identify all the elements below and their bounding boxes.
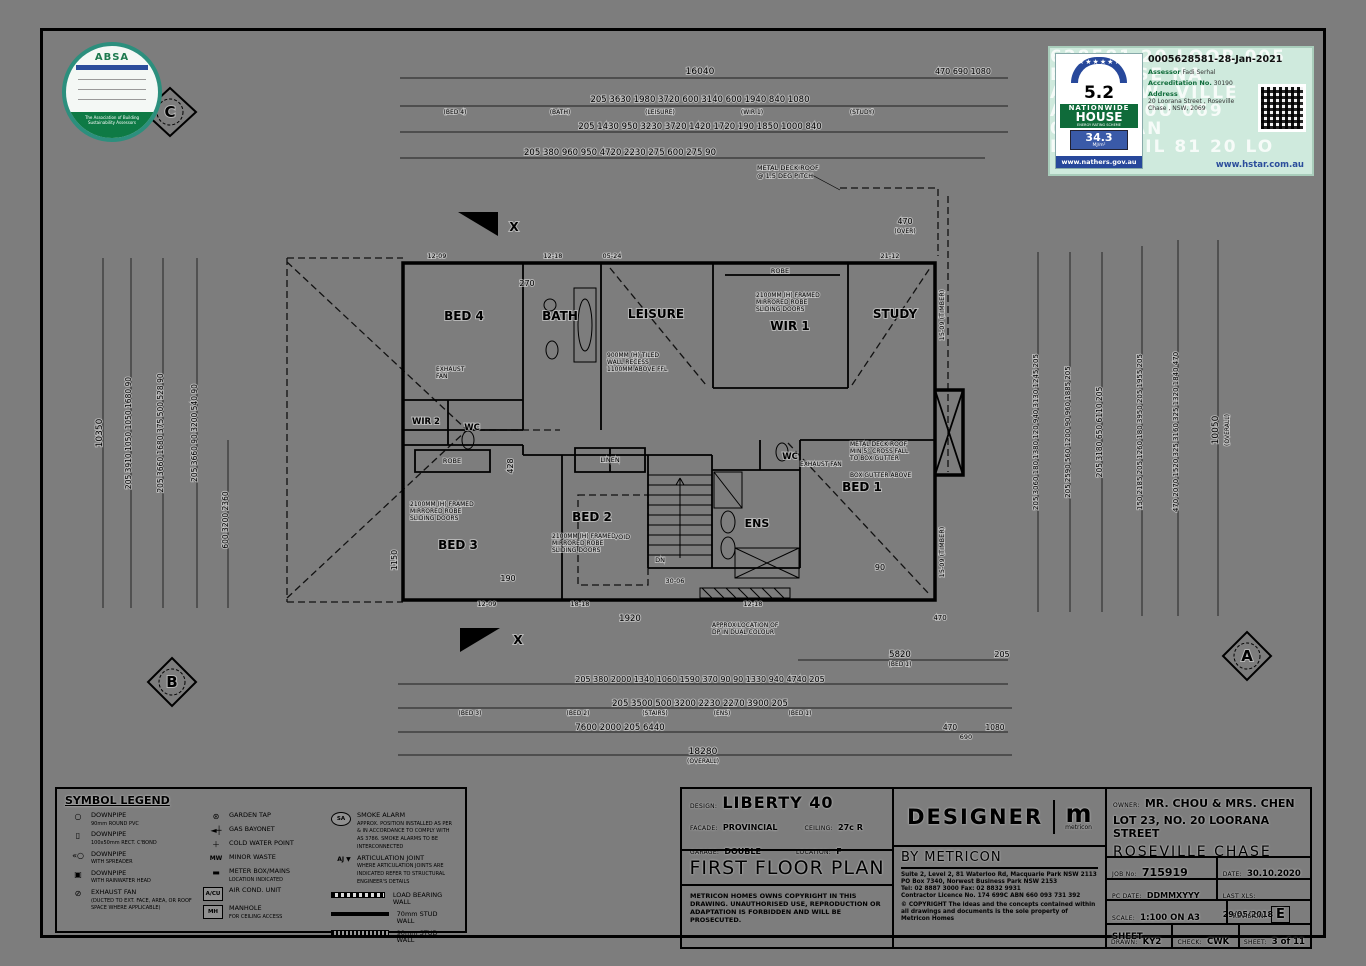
legend-label: AIR COND. UNIT <box>229 887 281 895</box>
dim-left: 205 3910 1050 1050 1680 90 <box>124 377 133 489</box>
dim-small: 1920 <box>619 614 641 624</box>
dim-sub: (OVERALL) <box>687 758 719 765</box>
bathroom-fixtures <box>462 288 799 578</box>
design-info-block: DESIGN: LIBERTY 40 FACADE: PROVINCIAL CE… <box>680 787 894 851</box>
address-line1: Suite 2, Level 2, 81 Waterloo Rd, Macqua… <box>901 872 1098 879</box>
drawn-label: DRAWN: <box>1111 939 1138 946</box>
window-tag: 12-09 <box>428 252 447 260</box>
section-x-bottom: X <box>513 633 523 647</box>
window-tag: 05-24 <box>603 252 622 260</box>
scheme-line2: HOUSE <box>1060 112 1138 123</box>
dimension-lines <box>103 78 1218 755</box>
brand-divider <box>1053 800 1055 834</box>
dim-sub: (BED 1) <box>789 710 812 717</box>
note-dp: APPROX LOCATION OF <box>712 622 779 629</box>
dim-right: 205 2590 560 1200 90 960 1885 205 <box>1064 366 1072 497</box>
dim-top: 205 380 960 950 4720 2230 275 600 275 90 <box>524 148 716 158</box>
note-roof: @ 1.5 DEG PITCH <box>757 172 813 180</box>
note-robe: MIRRORED ROBE <box>410 508 462 515</box>
window-tag: 12-18 <box>544 252 563 260</box>
legend-sub: APPROX. POSITION INSTALLED AS PER & IN A… <box>357 821 452 850</box>
design-label: DESIGN: <box>690 803 717 810</box>
downpipe-round-icon: ○ <box>65 812 91 822</box>
nathers-url: www.nathers.gov.au <box>1056 156 1142 168</box>
note-robe: 2100MM (H) FRAMED <box>756 292 820 299</box>
dim-small: 190 <box>500 574 515 583</box>
legend-sub: WITH SPREADER <box>91 859 133 865</box>
note-robe: SLIDING DOORS <box>552 547 601 554</box>
legend-label: MINOR WASTE <box>229 854 276 862</box>
legend-sub: (DUCTED TO EXT. FACE, AREA, OR ROOF SPAC… <box>91 898 192 912</box>
check-value: CWK <box>1207 937 1229 947</box>
dim-sub: (ENS) <box>714 710 731 717</box>
room-void: VOID <box>614 533 630 541</box>
window-tag: 15-09 (TIMBER) <box>938 527 946 578</box>
legend-label: GAS BAYONET <box>229 826 275 834</box>
room-wc2: WC <box>782 452 798 462</box>
dim-overall-right: 10050 <box>1211 415 1221 444</box>
dim-small: 90 <box>875 563 885 572</box>
legend-label: SMOKE ALARM <box>357 811 405 819</box>
pc-xls-row: PC DATE: DDMMXYYY LAST XLS: 29/05/2018 <box>1105 878 1312 901</box>
absa-logo: ABSA <box>66 52 158 63</box>
star-rating: 5.2 <box>1080 83 1118 103</box>
room-robe: ROBE <box>771 267 789 275</box>
dim-sub: (BED 1) <box>889 661 912 668</box>
drawing-title: FIRST FLOOR PLAN <box>689 857 884 879</box>
stud90-wall-sample <box>331 930 389 936</box>
dim-small: 1150 <box>390 550 399 570</box>
room-wir2: WIR 2 <box>412 417 440 427</box>
dim-small: 270 <box>519 279 534 288</box>
dim-top: 205 3630 1980 3720 600 3140 600 1940 840… <box>590 95 809 105</box>
energy-unit: MJ/m² <box>1071 143 1127 148</box>
note-gutter: BOX GUTTER ABOVE <box>850 472 911 479</box>
scheme-line3: ENERGY RATING SCHEME <box>1060 123 1138 127</box>
designer-wordmark: DESIGNER <box>907 805 1043 829</box>
legend-title: SYMBOL LEGEND <box>65 794 457 807</box>
assessor-value: Fadi Serhal <box>1183 69 1216 76</box>
room-ens: ENS <box>745 517 770 530</box>
note-recess: WALL RECESS <box>607 359 649 366</box>
nathers-rating-card: ★★★★★★ 5.2 NATIONWIDE HOUSE ENERGY RATIN… <box>1055 53 1143 169</box>
cold-water-icon: ＋ <box>203 840 229 850</box>
copyright-line: © COPYRIGHT The ideas and the concepts c… <box>901 902 1098 923</box>
dim-bottom: 5820 <box>889 650 911 660</box>
certificate-number: 0005628581-28-Jan-2021 <box>1148 54 1306 65</box>
ceiling-label: CEILING: <box>805 825 833 832</box>
note-robe: 2100MM (H) FRAMED <box>410 501 474 508</box>
garden-tap-icon: ⊛ <box>203 812 229 822</box>
room-study: STUDY <box>873 307 918 321</box>
facade-value: PROVINCIAL <box>723 823 778 832</box>
minor-waste-icon: MW <box>203 854 229 864</box>
marker-b-letter: B <box>166 673 177 691</box>
absa-date-line <box>78 95 146 100</box>
sheet-value: 3 of 11 <box>1272 937 1305 947</box>
stars-icon: ★★★★★★ <box>1078 58 1120 66</box>
dim-sub: (BATH) <box>550 109 571 116</box>
note-recess: 900MM (H) TILED <box>607 352 659 359</box>
nathers-details: 0005628581-28-Jan-2021 Assessor Fadi Ser… <box>1148 54 1306 170</box>
dim-sub: (OVER) <box>894 228 915 235</box>
revision-value: E <box>1271 906 1290 923</box>
window-tag: 18-18 <box>571 600 590 608</box>
dim-top: 470 690 1080 <box>935 67 991 76</box>
legend-col3: SASMOKE ALARMAPPROX. POSITION INSTALLED … <box>331 812 457 949</box>
ceiling-value: 27c R <box>838 823 863 832</box>
accreditation-value: 30190 <box>1214 80 1233 87</box>
dim-small: 428 <box>506 458 515 473</box>
downpipe-rwh-icon: ▣ <box>65 870 91 880</box>
dim-small: 470 <box>933 614 946 622</box>
note-roof2: MIN 5° CROSS FALL <box>850 448 909 455</box>
dim-left: 600 3200 2360 <box>221 491 230 548</box>
dim-bottom: 690 <box>960 733 972 741</box>
owner-label: OWNER: <box>1113 802 1140 809</box>
legend-sub: FOR CEILING ACCESS <box>229 914 282 920</box>
absa-band <box>76 65 148 70</box>
dim-left: 205 3660 90 3200 540 90 <box>190 384 199 482</box>
room-bed4: BED 4 <box>444 309 484 323</box>
meter-box-icon: ▬ <box>203 868 229 878</box>
assessor-label: Assessor <box>1148 68 1181 76</box>
dim-small: 470 <box>897 217 912 226</box>
smoke-alarm-icon: SA <box>331 812 351 826</box>
note-robe: MIRRORED ROBE <box>756 299 808 306</box>
drawn-check-sheet-row: DRAWN: KY2 CHECK: CWK SHEET: 3 of 11 <box>1105 923 1312 949</box>
exhaust-fan-icon: ⊘ <box>65 889 91 899</box>
by-metricon-heading: BY METRICON <box>901 850 1098 869</box>
dim-right: 470 2070 1520 325 3160 325 1320 1840 470 <box>1172 352 1180 512</box>
gas-bayonet-icon: ◄┼ <box>203 826 229 836</box>
note-roof2: TO BOX GUTTER <box>849 455 899 462</box>
window-tag: 12-18 <box>744 600 763 608</box>
address-label: Address <box>1148 90 1178 98</box>
check-label: CHECK: <box>1177 939 1201 946</box>
scale-revision-row: SCALE: 1:100 ON A3 SHEET REVISION: E <box>1105 899 1312 925</box>
legend-sub: WHERE ARTICULATION JOINTS ARE INDICATED … <box>357 863 445 885</box>
stair-dn: DN <box>655 556 665 564</box>
room-bed2: BED 2 <box>572 510 612 524</box>
phone-fax-line: Tel: 02 8887 3000 Fax: 02 8832 9931 <box>901 886 1098 893</box>
dim-sub: (WIR 1) <box>741 109 763 116</box>
legend-label: MANHOLE <box>229 904 262 912</box>
room-linen: LINEN <box>600 456 620 464</box>
legend-label: EXHAUST FAN <box>91 888 136 896</box>
hstar-url: www.hstar.com.au <box>1216 160 1304 170</box>
licence-line: Contractor Licence No. 174 699C ABN 660 … <box>901 893 1098 900</box>
revision-label: REVISION: <box>1233 913 1266 920</box>
note-recess: 1100MM ABOVE FFL <box>607 366 668 373</box>
legend-sub: WITH RAINWATER HEAD <box>91 878 151 884</box>
absa-cert-line <box>78 75 146 80</box>
date-label: DATE: <box>1223 871 1242 878</box>
room-wir1: WIR 1 <box>770 319 809 333</box>
aircon-unit-icon: A/CU <box>203 887 223 901</box>
load-bearing-wall-sample <box>331 892 385 898</box>
dim-bottom: 205 <box>994 650 1009 659</box>
section-x-top: X <box>509 220 519 234</box>
window-tag: 21-12 <box>881 252 900 260</box>
dim-sub: (BED 2) <box>567 710 590 717</box>
note-roof: METAL DECK ROOF <box>757 164 819 172</box>
sheet-label: SHEET: <box>1244 939 1267 946</box>
marker-c-letter: C <box>164 103 175 121</box>
legend-label: DOWNPIPE <box>91 869 126 877</box>
room-wc: WC <box>464 423 480 433</box>
dim-sub: (STAIRS) <box>642 710 668 717</box>
legend-label: 70mm STUD WALL <box>397 911 457 926</box>
legend-label: DOWNPIPE <box>91 811 126 819</box>
dim-bottom: 7600 2000 205 6440 <box>575 723 664 733</box>
metricon-logo-text: metricon <box>1065 824 1092 831</box>
legend-sub: LOCATION INDICATED <box>229 877 283 883</box>
dim-bottom: 205 3500 500 3200 2230 2270 3900 205 <box>612 699 788 709</box>
legend-label: GARDEN TAP <box>229 812 271 820</box>
dim-sub: (LEISURE) <box>645 109 675 116</box>
dim-left: 205 3660 1680 375 500 528 90 <box>156 373 165 493</box>
dim-sub: (BED 3) <box>459 710 482 717</box>
copyright-note: METRICON HOMES OWNS COPYRIGHT IN THIS DR… <box>690 892 881 924</box>
note-robe: SLIDING DOORS <box>756 306 805 313</box>
legend-col1: ○DOWNPIPE90mm ROUND PVC ▯DOWNPIPE100x50m… <box>65 812 203 949</box>
absa-assessor-line <box>78 85 146 90</box>
dim-sub: (BED 4) <box>444 109 467 116</box>
manhole-icon: MH <box>203 905 223 919</box>
legend-label: ARTICULATION JOINT <box>357 854 424 862</box>
dim-sub: (OVERALL) <box>1224 414 1231 446</box>
facade-label: FACADE: <box>690 825 718 832</box>
marker-a-letter: A <box>1241 647 1253 665</box>
design-name: LIBERTY 40 <box>722 793 833 812</box>
legend-sub: 100x50mm RECT. C'BOND <box>91 840 157 846</box>
drawing-title-block: FIRST FLOOR PLAN <box>680 849 894 886</box>
room-bed3: BED 3 <box>438 538 478 552</box>
note-robe: SLIDING DOORS <box>410 515 459 522</box>
drawing-sheet: 16040470 690 1080205 3630 1980 3720 600 … <box>0 0 1366 966</box>
note-exhaust: EXHAUST <box>436 366 465 373</box>
metricon-m-logo: m <box>1065 804 1092 824</box>
copyright-note-block: METRICON HOMES OWNS COPYRIGHT IN THIS DR… <box>680 884 894 949</box>
dim-bottom: 205 380 2000 1340 1060 1590 370 90 90 13… <box>575 675 824 684</box>
window-tag: 12-09 <box>478 600 497 608</box>
note-exhaust: EXHAUST FAN <box>800 461 842 468</box>
downpipe-rect-icon: ▯ <box>65 831 91 841</box>
legend-label: COLD WATER POINT <box>229 840 294 848</box>
energy-value-box: 34.3 MJ/m² <box>1070 130 1128 150</box>
symbol-legend: SYMBOL LEGEND ○DOWNPIPE90mm ROUND PVC ▯D… <box>55 787 467 933</box>
legend-label: DOWNPIPE <box>91 830 126 838</box>
dim-sub: (STUDY) <box>850 109 875 116</box>
owner-names: MR. CHOU & MRS. CHEN <box>1145 797 1295 810</box>
legend-col2: ⊛GARDEN TAP ◄┼GAS BAYONET ＋COLD WATER PO… <box>203 812 331 949</box>
note-dp: DP IN DUAL COLOUR <box>712 629 774 636</box>
dim-overall-left: 10350 <box>95 418 105 447</box>
legend-sub: 90mm ROUND PVC <box>91 821 139 827</box>
by-metricon-block: BY METRICON Suite 2, Level 2, 81 Waterlo… <box>892 845 1107 949</box>
note-robe: 2100MM (H) FRAMED <box>552 533 616 540</box>
window-tag: 15-09 (TIMBER) <box>938 290 946 341</box>
dim-right: 205 3180 650 6110 205 <box>1095 386 1104 477</box>
dim-bottom: 1080 <box>985 723 1004 732</box>
dim-overall-top: 16040 <box>686 67 715 77</box>
legend-label: METER BOX/MAINS <box>229 867 290 875</box>
job-label: JOB No: <box>1112 871 1137 878</box>
address-line2: PO Box 7340, Norwest Business Park NSW 2… <box>901 879 1098 886</box>
star-arc: ★★★★★★ <box>1071 57 1127 83</box>
job-date-row: JOB No: 715919 DATE: 30.10.2020 <box>1105 856 1312 880</box>
dim-right: 205 3060 180 1380 120 940 3130 1245 205 <box>1032 354 1040 510</box>
scale-label: SCALE: <box>1112 915 1135 922</box>
absa-footer: The Association of Building Sustainabili… <box>66 112 158 138</box>
dim-bottom: 470 <box>943 723 958 732</box>
legend-label: 90mm STUD WALL <box>397 930 457 945</box>
dim-right: 150 2185 205 1260 180 3950 205 1955 205 <box>1136 354 1144 510</box>
room-bed1: BED 1 <box>842 480 882 494</box>
room-robe: ROBE <box>443 457 461 465</box>
owner-address: LOT 23, NO. 20 LOORANA STREET <box>1113 814 1304 840</box>
accreditation-label: Accreditation No. <box>1148 79 1212 87</box>
stair-treads <box>648 475 712 558</box>
articulation-joint-icon: AJ ▼ <box>331 855 357 865</box>
designer-brand-block: DESIGNER m metricon <box>892 787 1107 847</box>
drawn-value: KY2 <box>1143 937 1162 947</box>
nathers-certificate: 628581 20 LOOR 005 EET, ROSE NA ASE NSW … <box>1048 46 1314 176</box>
deck-hatch <box>700 588 790 598</box>
nathers-scheme-box: NATIONWIDE HOUSE ENERGY RATING SCHEME <box>1060 104 1138 128</box>
note-exhaust: FAN <box>436 373 448 380</box>
absa-sticker: ABSA The Association of Building Sustain… <box>62 42 162 142</box>
dim-top: 205 1430 950 3230 3720 1420 1720 190 185… <box>578 122 821 132</box>
legend-label: DOWNPIPE <box>91 850 126 858</box>
window-tag: 30-06 <box>666 577 685 585</box>
room-leisure: LEISURE <box>628 307 684 321</box>
note-roof2: METAL DECK ROOF <box>850 441 908 448</box>
qr-code <box>1258 84 1306 132</box>
note-robe: MIRRORED ROBE <box>552 540 604 547</box>
room-bath: BATH <box>542 309 578 323</box>
stud70-wall-sample <box>331 912 389 916</box>
legend-label: LOAD BEARING WALL <box>393 892 457 907</box>
downpipe-spreader-icon: «○ <box>65 851 91 861</box>
energy-value: 34.3 <box>1071 132 1127 143</box>
owner-block: OWNER: MR. CHOU & MRS. CHEN LOT 23, NO. … <box>1105 787 1312 858</box>
dim-overall-bottom: 18280 <box>689 747 718 757</box>
